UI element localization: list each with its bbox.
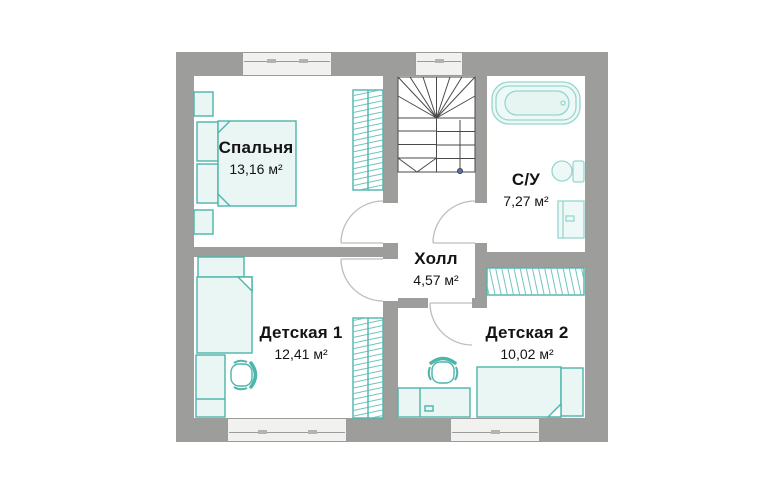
room-area-bathroom: 7,27 м²: [476, 193, 576, 209]
bathtub-drain: [561, 101, 565, 105]
nightstand-bottom: [194, 210, 213, 234]
label-hall: Холл 4,57 м²: [386, 249, 486, 288]
label-bathroom: С/У 7,27 м²: [476, 170, 576, 209]
stair-newel-post: [457, 168, 462, 173]
label-kids1: Детская 1 12,41 м²: [231, 323, 371, 362]
room-name-bedroom: Спальня: [186, 138, 326, 158]
room-name-bathroom: С/У: [476, 170, 576, 190]
bathtub: [492, 82, 580, 124]
single-bed-kids2: [477, 367, 583, 417]
wardrobe-kids2: [487, 268, 584, 295]
door-kids1: [341, 259, 383, 301]
door-bedroom: [341, 201, 383, 243]
desk-chair-kids1: [231, 361, 256, 390]
room-area-kids2: 10,02 м²: [457, 346, 597, 362]
room-name-kids1: Детская 1: [231, 323, 371, 343]
label-kids2: Детская 2 10,02 м²: [457, 323, 597, 362]
room-area-kids1: 12,41 м²: [231, 346, 371, 362]
desk-kids2: [398, 388, 470, 417]
staircase: [398, 77, 475, 174]
desk-kids1: [196, 355, 225, 417]
room-area-hall: 4,57 м²: [386, 272, 486, 288]
door-bathroom: [433, 201, 475, 243]
desk-chair-kids2: [429, 359, 458, 384]
room-name-kids2: Детская 2: [457, 323, 597, 343]
wardrobe-bedroom: [353, 90, 383, 190]
room-area-bedroom: 13,16 м²: [186, 161, 326, 177]
room-name-hall: Холл: [386, 249, 486, 269]
plan-graphics: [0, 0, 766, 502]
label-bedroom: Спальня 13,16 м²: [186, 138, 326, 177]
nightstand-top: [194, 92, 213, 116]
floor-plan: Спальня 13,16 м² С/У 7,27 м² Холл 4,57 м…: [0, 0, 766, 502]
